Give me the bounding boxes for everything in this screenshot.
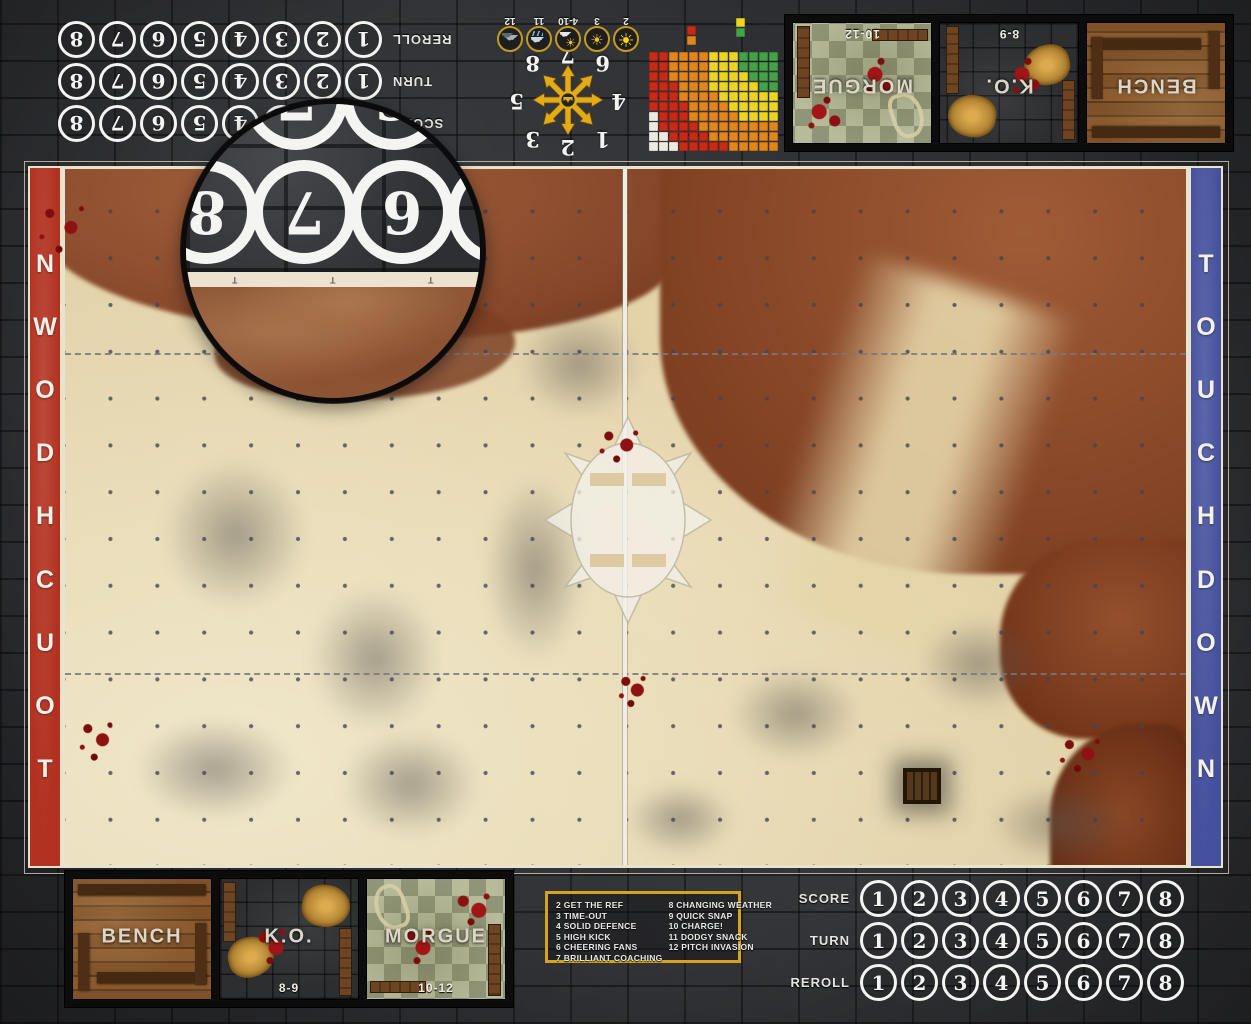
- track-row-turn: TURN12345678: [788, 921, 1184, 960]
- range-cell-short-pass: [729, 72, 738, 81]
- range-cell-long-bomb: [689, 132, 698, 141]
- track-number-circle: 2: [304, 21, 341, 58]
- kickoff-table-right-column: 8 CHANGING WEATHER9 QUICK SNAP10 CHARGE!…: [669, 900, 772, 956]
- scorch-smudge: [965, 769, 1155, 868]
- touchdown-letter: T: [37, 757, 52, 782]
- track-number-circle: 7: [99, 105, 136, 142]
- kickoff-entry: 12 PITCH INVASION: [669, 942, 772, 953]
- magnifier-inset: 876576 TTT: [181, 99, 485, 403]
- range-cell-long-pass: [689, 92, 698, 101]
- weather-cell: ☀: [612, 26, 640, 52]
- magnified-rock-terrain: [186, 287, 480, 398]
- range-cell-long-pass: [699, 112, 708, 121]
- weather-cell: ☀: [583, 26, 611, 52]
- range-cell-long-pass: [719, 132, 728, 141]
- range-cell-long-pass: [749, 122, 758, 131]
- dugouts-near-player: BENCHK.O.8-9MORGUE10-12: [64, 870, 514, 1008]
- range-cell-short-pass: [739, 82, 748, 91]
- hay-bale: [299, 882, 352, 930]
- range-cell-long-bomb: [659, 102, 668, 111]
- track-number-circle: 3: [263, 21, 300, 58]
- range-cell-long-pass: [769, 142, 778, 151]
- track-number-circle: 5: [1024, 922, 1061, 959]
- range-cell-long-pass: [749, 132, 758, 141]
- kickoff-entry: 2 GET THE REF: [556, 900, 663, 911]
- dugout-label: BENCH: [73, 926, 211, 949]
- track-number-circle: 7: [1106, 880, 1143, 917]
- range-cell-long-pass: [719, 112, 728, 121]
- track-number-circle: 7: [1106, 922, 1143, 959]
- range-legend-short: [736, 18, 745, 37]
- dugouts-far-player: BENCHK.O.8-9MORGUE10-12: [784, 14, 1234, 152]
- scorch-smudge: [895, 599, 1065, 729]
- range-cell-out-of-range: [659, 142, 668, 151]
- pass-range-ruler: [649, 52, 778, 151]
- touchdown-letter: C: [1197, 441, 1215, 466]
- range-cell-short-pass: [749, 92, 758, 101]
- touchdown-letter: O: [1196, 631, 1215, 656]
- track-label: SCORE: [788, 891, 856, 906]
- kickoff-entry: 8 CHANGING WEATHER: [669, 900, 772, 911]
- track-number-circle: 4: [983, 922, 1020, 959]
- scatter-number: 4: [612, 89, 626, 114]
- touchdown-letter: U: [1197, 378, 1215, 403]
- dugout-label: K.O.: [220, 926, 358, 949]
- hay-bale: [945, 92, 998, 140]
- touchdown-endzone-right: TOUCHDOWN: [1189, 166, 1223, 868]
- range-cell-quick-pass: [769, 72, 778, 81]
- touchdown-endzone-left: NWODHCUOT: [28, 166, 62, 868]
- weather-track-labels: 234-101112: [496, 15, 640, 26]
- track-number-circle: 6: [1065, 880, 1102, 917]
- weather-cell: ☁: [525, 26, 553, 52]
- range-cell-out-of-range: [669, 142, 678, 151]
- track-number-circle: 4: [983, 880, 1020, 917]
- wooden-crate: [903, 768, 941, 804]
- track-number-circle: 5: [1024, 880, 1061, 917]
- range-cell-long-bomb: [669, 92, 678, 101]
- range-cell-short-pass: [749, 82, 758, 91]
- range-cell-long-bomb: [669, 102, 678, 111]
- range-cell-long-bomb: [669, 132, 678, 141]
- range-cell-short-pass: [729, 62, 738, 71]
- range-cell-out-of-range: [649, 132, 658, 141]
- range-cell-short-pass: [729, 82, 738, 91]
- weather-track: ☀☀☀☁☁☁☁: [496, 26, 640, 52]
- wood-bar: [78, 884, 206, 895]
- scatter-number: 8: [526, 51, 540, 76]
- track-number-circle: 8: [1147, 880, 1184, 917]
- track-number-circle: 6: [1065, 964, 1102, 1001]
- range-cell-short-pass: [719, 62, 728, 71]
- kickoff-entry: 4 SOLID DEFENCE: [556, 921, 663, 932]
- kickoff-entry: 3 TIME-OUT: [556, 911, 663, 922]
- range-cell-long-pass: [729, 112, 738, 121]
- weather-label: 12: [496, 15, 524, 26]
- touchdown-letter: N: [1197, 757, 1215, 782]
- range-cell-short-pass: [709, 62, 718, 71]
- track-number-circle: 8: [58, 105, 95, 142]
- scatter-number: 2: [561, 135, 575, 160]
- touchdown-letter: T: [1198, 252, 1213, 277]
- range-cell-short-pass: [739, 102, 748, 111]
- scatter-number: 5: [510, 89, 524, 114]
- scatter-number: 3: [526, 127, 540, 152]
- range-cell-long-pass: [679, 92, 688, 101]
- range-cell-long-pass: [669, 52, 678, 61]
- blazing-sun-icon: ☀: [613, 26, 639, 52]
- range-cell-quick-pass: [769, 62, 778, 71]
- dugout-range: 8-9: [940, 27, 1078, 41]
- touchdown-letter: W: [1194, 694, 1218, 719]
- touchdown-letter: O: [35, 378, 54, 403]
- range-cell-long-bomb: [659, 82, 668, 91]
- weather-label: 4-10: [554, 15, 582, 26]
- dugout-morgue: MORGUE10-12: [792, 22, 932, 144]
- weather-label: 2: [612, 15, 640, 26]
- scatter-number: 6: [596, 51, 610, 76]
- range-cell-long-bomb: [649, 82, 658, 91]
- dugout-range: 10-12: [793, 27, 931, 41]
- range-cell-short-pass: [759, 92, 768, 101]
- range-cell-quick-pass: [769, 82, 778, 91]
- touchdown-letter: C: [36, 568, 54, 593]
- range-cell-long-pass: [699, 62, 708, 71]
- rain-drops: [531, 31, 543, 36]
- touchdown-letter: O: [1196, 315, 1215, 340]
- track-number-circle: 2: [304, 63, 341, 100]
- range-cell-quick-pass: [769, 52, 778, 61]
- track-number-circle: 6: [140, 105, 177, 142]
- range-cell-long-pass: [709, 122, 718, 131]
- range-cell-long-bomb: [659, 52, 668, 61]
- track-number-circle: 7: [1106, 964, 1143, 1001]
- track-number-circle: 8: [58, 63, 95, 100]
- range-cell-quick-pass: [759, 52, 768, 61]
- range-cell-quick-pass: [759, 72, 768, 81]
- touchdown-letter: D: [36, 441, 54, 466]
- edge-tick-mark: T: [330, 275, 336, 284]
- range-cell-long-pass: [689, 102, 698, 111]
- weather-cell: ☁☁: [496, 26, 524, 52]
- scatter-number: 1: [596, 127, 610, 152]
- range-cell-long-pass: [679, 52, 688, 61]
- range-cell-short-pass: [759, 112, 768, 121]
- range-cell-long-bomb: [649, 72, 658, 81]
- range-cell-long-bomb: [669, 122, 678, 131]
- range-cell-long-pass: [739, 122, 748, 131]
- range-cell-long-bomb: [709, 142, 718, 151]
- track-row-reroll: REROLL12345678: [788, 963, 1184, 1002]
- range-cell-long-pass: [759, 142, 768, 151]
- range-cell-long-pass: [679, 62, 688, 71]
- range-cell-short-pass: [769, 112, 778, 121]
- range-cell-long-pass: [759, 132, 768, 141]
- range-cell-short-pass: [729, 52, 738, 61]
- blood-splatter: [1052, 729, 1110, 781]
- range-cell-long-bomb: [679, 132, 688, 141]
- tracks-near-player: SCORE12345678TURN12345678REROLL12345678: [788, 879, 1184, 1002]
- range-cell-long-pass: [679, 72, 688, 81]
- range-cell-long-pass: [709, 92, 718, 101]
- range-cell-long-pass: [699, 92, 708, 101]
- dugout-range: 8-9: [220, 981, 358, 995]
- range-cell-long-bomb: [649, 62, 658, 71]
- range-cell-long-bomb: [679, 102, 688, 111]
- dugout-label: MORGUE: [367, 926, 505, 949]
- wood-bar: [97, 972, 206, 983]
- sun-icon: ☀: [584, 26, 610, 52]
- range-cell-short-pass: [739, 112, 748, 121]
- range-legend-long: [687, 26, 696, 45]
- range-cell-short-pass: [729, 102, 738, 111]
- magnifier-number-circle: 6: [350, 160, 454, 264]
- range-cell-long-pass: [749, 142, 758, 151]
- weather-cell: ☀☁: [554, 26, 582, 52]
- track-number-circle: 1: [345, 63, 382, 100]
- kickoff-table: 2 GET THE REF3 TIME-OUT4 SOLID DEFENCE5 …: [545, 891, 741, 963]
- track-number-circle: 6: [140, 21, 177, 58]
- range-cell-short-pass: [769, 92, 778, 101]
- dugout-range: 10-12: [367, 981, 505, 995]
- range-cell-long-pass: [689, 72, 698, 81]
- partly-cloudy-icon: ☀☁: [555, 26, 581, 52]
- track-number-circle: 8: [1147, 922, 1184, 959]
- legend-short-pass: [736, 18, 745, 27]
- track-number-circle: 2: [901, 922, 938, 959]
- range-cell-long-pass: [709, 102, 718, 111]
- range-cell-long-bomb: [649, 92, 658, 101]
- track-number-circle: 1: [860, 880, 897, 917]
- dugout-morgue: MORGUE10-12: [366, 878, 506, 1000]
- weather-and-scatter-panel: 1 2 3 4 5 6 7 8 ☀☀☀☁☁☁☁ 234-101112: [494, 10, 642, 152]
- track-number-circle: 1: [860, 922, 897, 959]
- range-cell-long-pass: [769, 122, 778, 131]
- kickoff-entry: 9 QUICK SNAP: [669, 911, 772, 922]
- range-cell-long-pass: [689, 112, 698, 121]
- touchdown-letter: U: [36, 631, 54, 656]
- range-cell-long-pass: [699, 102, 708, 111]
- kickoff-entry: 10 CHARGE!: [669, 921, 772, 932]
- range-cell-out-of-range: [659, 132, 668, 141]
- magnified-pitch-edge: TTT: [186, 272, 480, 287]
- range-cell-quick-pass: [739, 62, 748, 71]
- track-number-circle: 7: [99, 63, 136, 100]
- range-cell-long-bomb: [669, 82, 678, 91]
- range-cell-short-pass: [719, 82, 728, 91]
- range-cell-long-bomb: [719, 142, 728, 151]
- range-cell-short-pass: [719, 52, 728, 61]
- track-number-circle: 3: [942, 922, 979, 959]
- range-cell-long-pass: [739, 142, 748, 151]
- scorch-smudge: [105, 699, 325, 839]
- blood-bowl-pitch-mat: NWODHCUOT TOUCHDOWN: [0, 0, 1251, 1024]
- range-cell-long-bomb: [659, 62, 668, 71]
- blood-splatter: [74, 710, 120, 772]
- kickoff-entry: 6 CHEERING FANS: [556, 942, 663, 953]
- range-cell-long-pass: [679, 82, 688, 91]
- range-cell-long-pass: [689, 62, 698, 71]
- range-cell-long-bomb: [659, 112, 668, 121]
- track-number-circle: 4: [983, 964, 1020, 1001]
- track-number-circle: 1: [860, 964, 897, 1001]
- range-cell-long-pass: [709, 112, 718, 121]
- range-cell-long-bomb: [679, 142, 688, 151]
- scatter-template: 1 2 3 4 5 6 7 8: [514, 46, 622, 154]
- track-row-turn: TURN12345678: [58, 62, 454, 101]
- range-cell-long-pass: [769, 132, 778, 141]
- track-label: TURN: [386, 74, 454, 89]
- range-cell-long-bomb: [699, 132, 708, 141]
- range-cell-short-pass: [719, 92, 728, 101]
- track-row-reroll: REROLL12345678: [58, 20, 454, 59]
- track-number-circle: 3: [942, 880, 979, 917]
- range-cell-quick-pass: [759, 62, 768, 71]
- touchdown-letter: W: [33, 315, 57, 340]
- dugout-bench: BENCH: [1086, 22, 1226, 144]
- touchdown-letter: H: [1197, 504, 1215, 529]
- range-cell-quick-pass: [749, 72, 758, 81]
- range-cell-quick-pass: [749, 52, 758, 61]
- range-cell-short-pass: [749, 102, 758, 111]
- legend-long-pass: [687, 36, 696, 45]
- range-cell-long-bomb: [689, 122, 698, 131]
- range-cell-short-pass: [709, 52, 718, 61]
- track-number-circle: 5: [181, 63, 218, 100]
- rain-cloud-icon: ☁: [526, 26, 552, 52]
- scorch-smudge: [315, 709, 505, 859]
- range-cell-long-pass: [689, 82, 698, 91]
- range-cell-out-of-range: [649, 112, 658, 121]
- weather-label: 11: [525, 15, 553, 26]
- range-cell-short-pass: [719, 72, 728, 81]
- track-number-circle: 2: [901, 964, 938, 1001]
- kickoff-table-left-column: 2 GET THE REF3 TIME-OUT4 SOLID DEFENCE5 …: [556, 900, 663, 956]
- kickoff-entry: 11 DODGY SNACK: [669, 932, 772, 943]
- track-number-circle: 6: [1065, 922, 1102, 959]
- range-cell-long-pass: [709, 132, 718, 141]
- track-label: REROLL: [386, 32, 454, 47]
- range-cell-long-pass: [759, 122, 768, 131]
- track-number-circle: 4: [222, 21, 259, 58]
- track-number-circle: 8: [58, 21, 95, 58]
- range-cell-long-bomb: [699, 142, 708, 151]
- track-number-circle: 2: [901, 880, 938, 917]
- touchdown-letter: D: [1197, 568, 1215, 593]
- range-cell-long-bomb: [649, 52, 658, 61]
- range-cell-long-bomb: [669, 112, 678, 121]
- kickoff-entry: 5 HIGH KICK: [556, 932, 663, 943]
- range-cell-long-bomb: [659, 122, 668, 131]
- wood-bar: [1092, 39, 1201, 50]
- range-cell-long-pass: [689, 52, 698, 61]
- touchdown-letter: H: [36, 504, 54, 529]
- dugout-ko: K.O.8-9: [219, 878, 359, 1000]
- range-cell-long-pass: [729, 142, 738, 151]
- range-cell-long-pass: [699, 52, 708, 61]
- track-label: TURN: [788, 933, 856, 948]
- legend-long-bomb: [687, 26, 696, 35]
- track-number-circle: 5: [1024, 964, 1061, 1001]
- range-cell-long-bomb: [659, 72, 668, 81]
- track-number-circle: 8: [1147, 964, 1184, 1001]
- range-cell-long-pass: [739, 132, 748, 141]
- edge-tick-mark: T: [232, 275, 238, 284]
- range-cell-quick-pass: [739, 52, 748, 61]
- range-cell-long-bomb: [679, 122, 688, 131]
- wood-bar: [1092, 127, 1220, 138]
- range-cell-short-pass: [739, 72, 748, 81]
- range-cell-short-pass: [749, 112, 758, 121]
- range-cell-long-pass: [729, 132, 738, 141]
- range-cell-long-pass: [719, 102, 728, 111]
- range-cell-long-bomb: [689, 142, 698, 151]
- range-cell-long-pass: [699, 82, 708, 91]
- dugout-bench: BENCH: [72, 878, 212, 1000]
- track-number-circle: 3: [263, 63, 300, 100]
- track-number-circle: 7: [99, 21, 136, 58]
- range-cell-short-pass: [709, 72, 718, 81]
- range-cell-out-of-range: [649, 122, 658, 131]
- touchdown-letter: O: [35, 694, 54, 719]
- blood-splatter: [592, 421, 648, 471]
- kickoff-entry: 7 BRILLIANT COACHING: [556, 953, 663, 964]
- track-number-circle: 5: [181, 21, 218, 58]
- dugout-label: MORGUE: [793, 73, 931, 96]
- range-cell-quick-pass: [749, 62, 758, 71]
- storm-clouds-icon: ☁☁: [497, 26, 523, 52]
- edge-tick-mark: T: [428, 275, 434, 284]
- range-cell-short-pass: [739, 92, 748, 101]
- range-cell-short-pass: [709, 82, 718, 91]
- scorch-smudge: [705, 649, 885, 779]
- range-cell-long-pass: [699, 122, 708, 131]
- range-cell-quick-pass: [759, 82, 768, 91]
- range-cell-short-pass: [729, 92, 738, 101]
- magnifier-number-circle: 7: [252, 160, 356, 264]
- range-cell-long-pass: [729, 122, 738, 131]
- range-cell-long-pass: [669, 72, 678, 81]
- blood-splatter: [615, 667, 651, 715]
- track-number-circle: 4: [222, 63, 259, 100]
- range-cell-long-pass: [699, 72, 708, 81]
- track-row-score: SCORE12345678: [788, 879, 1184, 918]
- track-number-circle: 1: [345, 21, 382, 58]
- dugout-label: K.O.: [940, 73, 1078, 96]
- range-cell-long-bomb: [649, 102, 658, 111]
- range-cell-short-pass: [759, 102, 768, 111]
- range-cell-long-bomb: [659, 92, 668, 101]
- range-cell-short-pass: [769, 102, 778, 111]
- weather-label: 3: [583, 15, 611, 26]
- track-label: REROLL: [788, 975, 856, 990]
- track-number-circle: 3: [942, 964, 979, 1001]
- range-cell-long-pass: [669, 62, 678, 71]
- range-cell-long-pass: [719, 122, 728, 131]
- range-cell-long-bomb: [679, 112, 688, 121]
- dugout-ko: K.O.8-9: [939, 22, 1079, 144]
- scorch-smudge: [605, 769, 755, 868]
- track-number-circle: 6: [140, 63, 177, 100]
- dugout-label: BENCH: [1087, 73, 1225, 96]
- legend-quick-pass: [736, 28, 745, 37]
- range-cell-out-of-range: [649, 142, 658, 151]
- blood-splatter: [30, 190, 96, 268]
